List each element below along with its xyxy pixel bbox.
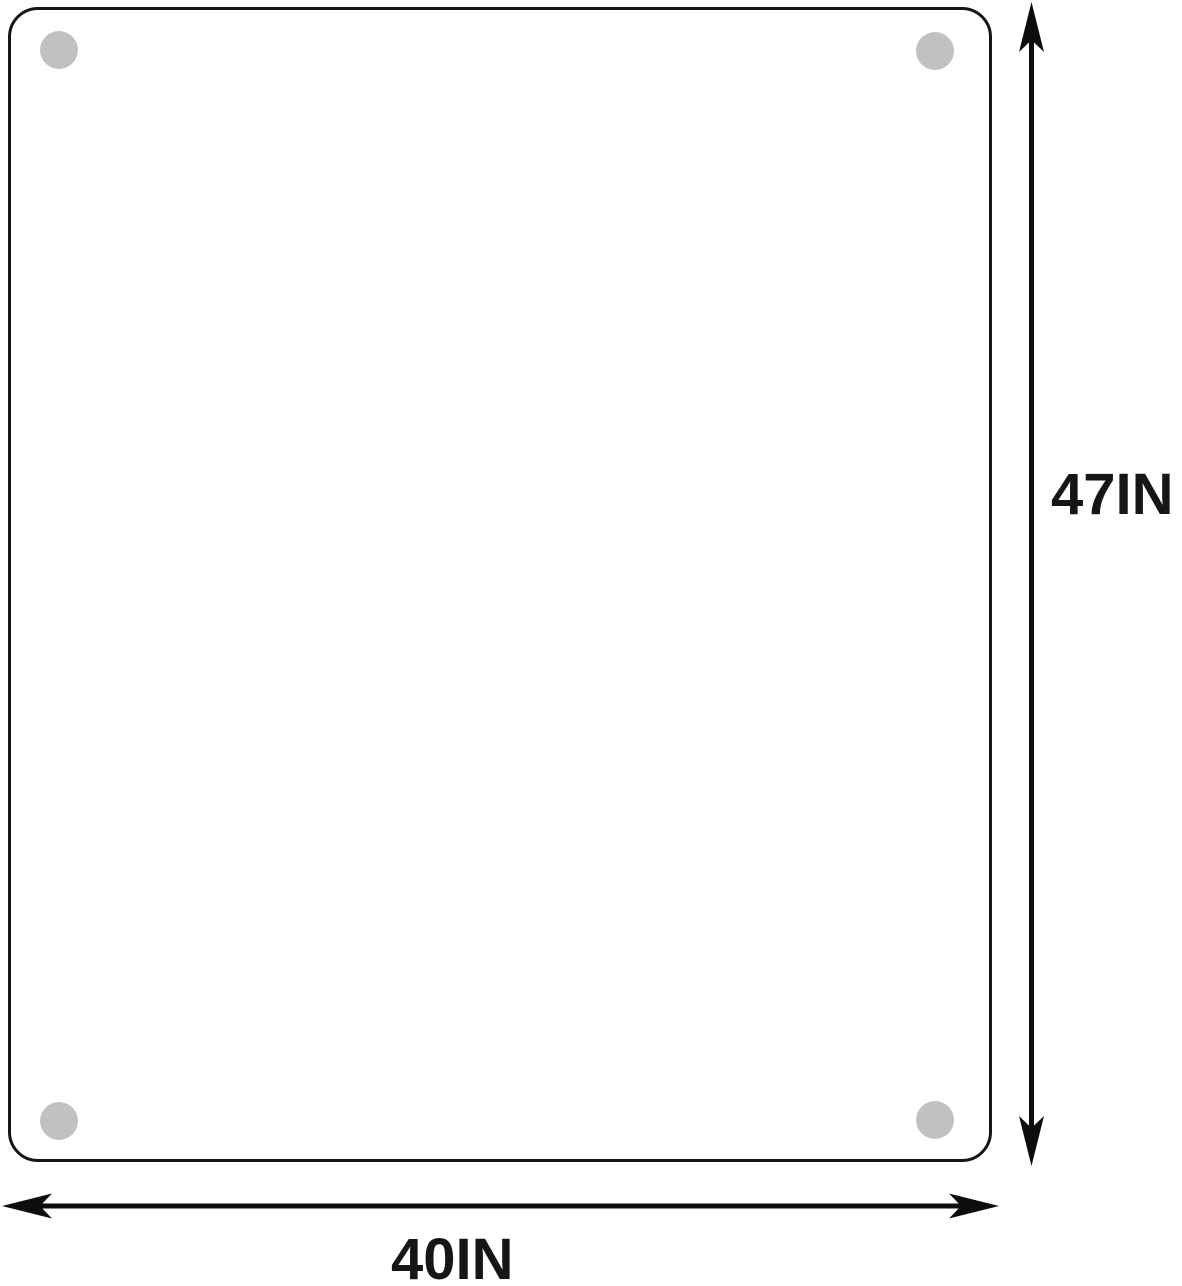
dimension-diagram: 47IN 40IN [0,0,1182,1286]
width-arrow-icon [2,1194,999,1219]
height-arrow-icon [1019,2,1044,1166]
width-dimension-label: 40IN [391,1231,514,1286]
dimension-arrows [0,0,1182,1286]
height-dimension-label: 47IN [1051,466,1174,524]
